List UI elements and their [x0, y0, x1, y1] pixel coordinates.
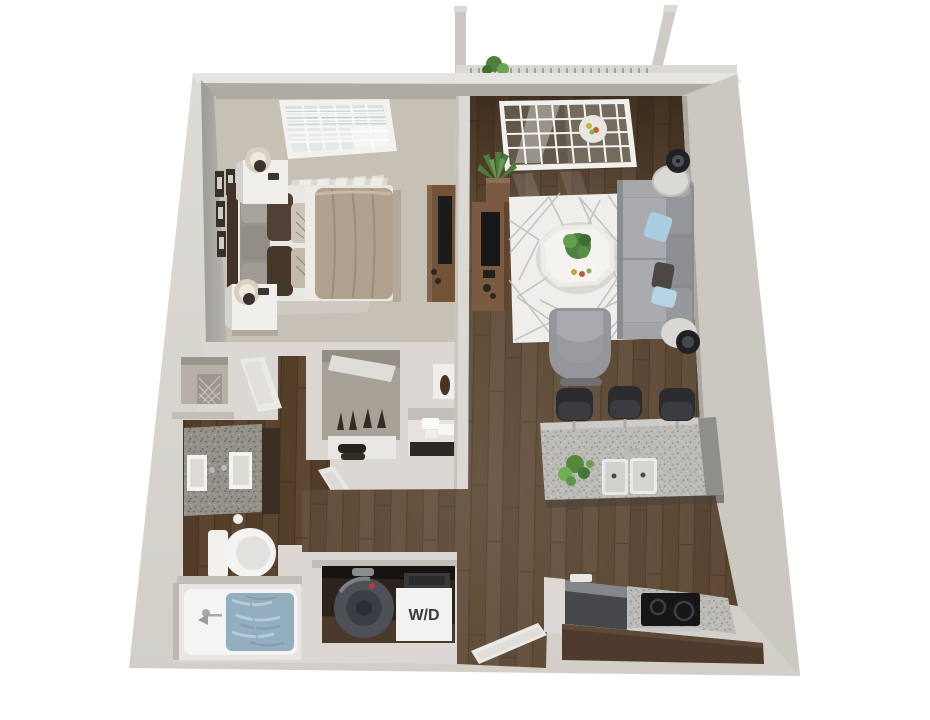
- svg-text:W/D: W/D: [408, 607, 439, 624]
